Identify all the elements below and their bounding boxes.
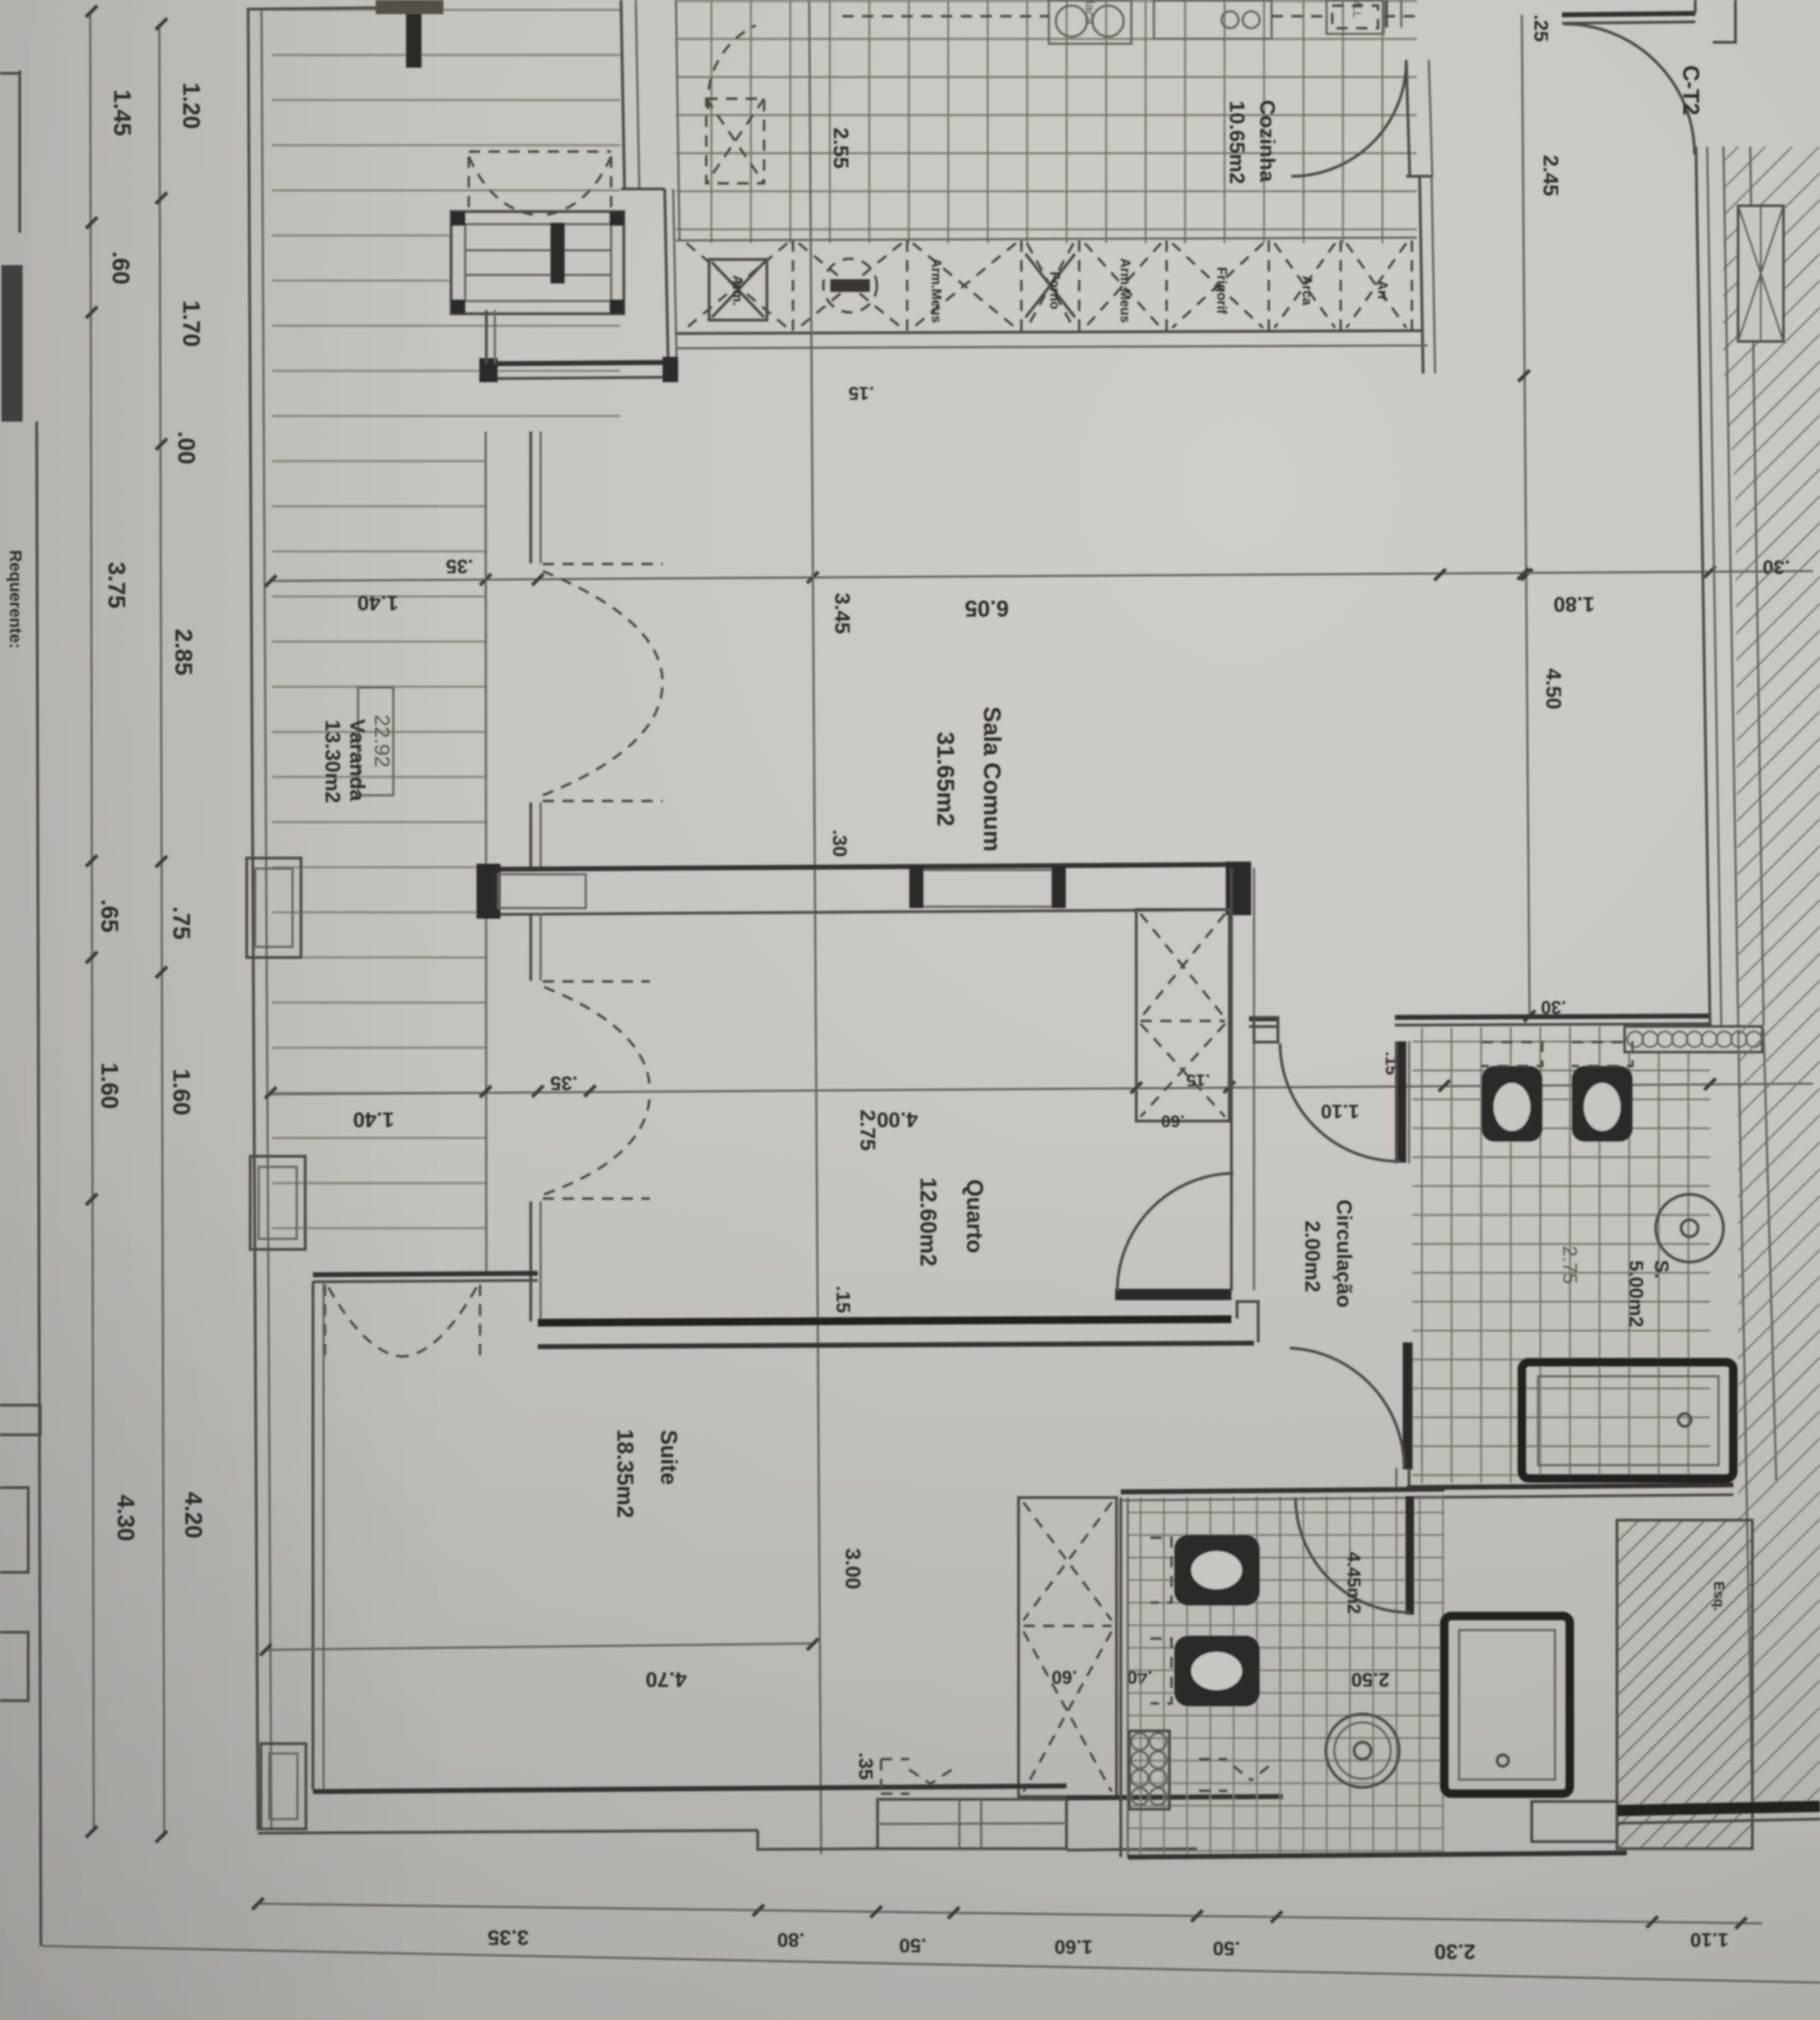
svg-text:Arm.Meus: Arm.Meus	[1117, 258, 1132, 323]
svg-text:Quarto: Quarto	[962, 1180, 988, 1254]
svg-text:.75: .75	[168, 906, 195, 939]
svg-text:1.40: 1.40	[353, 1108, 394, 1131]
svg-text:3.45: 3.45	[830, 593, 854, 634]
svg-text:3.75: 3.75	[103, 562, 130, 608]
svg-text:.15: .15	[832, 1286, 854, 1314]
svg-text:1.20: 1.20	[178, 82, 204, 129]
svg-text:5.00m2: 5.00m2	[1625, 1261, 1647, 1328]
svg-text:1.60: 1.60	[96, 1063, 123, 1109]
svg-text:Forno: Forno	[1047, 271, 1062, 310]
svg-text:.50: .50	[899, 1935, 927, 1957]
svg-text:Arm.Meus: Arm.Meus	[928, 258, 943, 323]
svg-text:C-T2: C-T2	[1678, 65, 1704, 115]
svg-text:1.10: 1.10	[1321, 1101, 1360, 1122]
svg-text:4.00: 4.00	[877, 1108, 918, 1131]
svg-text:4.50: 4.50	[1542, 668, 1565, 709]
svg-text:4.45m2: 4.45m2	[1344, 1552, 1365, 1614]
svg-text:Frigorif: Frigorif	[1214, 267, 1229, 314]
svg-text:Esq.: Esq.	[1711, 1581, 1726, 1611]
svg-text:1.60: 1.60	[1055, 1936, 1093, 1958]
svg-text:.60: .60	[107, 251, 134, 284]
svg-text:3.00: 3.00	[841, 1548, 864, 1589]
svg-text:.35: .35	[446, 556, 474, 577]
svg-text:4.30: 4.30	[112, 1495, 139, 1541]
svg-text:3.35: 3.35	[488, 1926, 529, 1949]
svg-text:2.75: 2.75	[1559, 1246, 1581, 1285]
svg-text:.35: .35	[855, 1753, 877, 1780]
svg-text:Arm.: Arm.	[730, 275, 744, 305]
svg-text:2.00m2: 2.00m2	[1301, 1220, 1324, 1292]
svg-text:.35: .35	[551, 1072, 578, 1094]
svg-text:13.30m2: 13.30m2	[321, 720, 344, 803]
svg-text:10.65m2: 10.65m2	[1225, 101, 1248, 184]
svg-text:1.80: 1.80	[1554, 592, 1594, 616]
svg-text:22.92: 22.92	[370, 714, 393, 767]
svg-text:6.05: 6.05	[965, 596, 1009, 621]
svg-text:31.65m2: 31.65m2	[932, 732, 959, 826]
svg-text:Suite: Suite	[656, 1430, 682, 1485]
svg-text:18.35m2: 18.35m2	[613, 1429, 638, 1518]
svg-text:4.20: 4.20	[180, 1492, 207, 1538]
svg-text:.30: .30	[829, 830, 851, 857]
svg-text:1.70: 1.70	[178, 300, 204, 347]
svg-text:.60: .60	[1052, 1667, 1077, 1688]
svg-text:Cozinha: Cozinha	[1255, 100, 1279, 183]
svg-text:S.: S.	[1651, 1260, 1673, 1278]
svg-text:Arca: Arca	[1299, 276, 1314, 306]
svg-text:.80: .80	[777, 1929, 805, 1951]
svg-text:Arr: Arr	[1375, 281, 1389, 301]
svg-text:Varanda: Varanda	[345, 719, 369, 802]
svg-text:Requerente:: Requerente:	[6, 550, 25, 649]
svg-text:2.50: 2.50	[1351, 1669, 1390, 1691]
svg-text:Sala Comum: Sala Comum	[978, 706, 1005, 852]
svg-text:MLL: MLL	[1351, 0, 1363, 18]
svg-text:1.60: 1.60	[168, 1069, 195, 1115]
svg-text:4.70: 4.70	[646, 1667, 687, 1691]
svg-text:2.45: 2.45	[1539, 155, 1562, 196]
svg-text:1.45: 1.45	[109, 90, 135, 136]
svg-text:2.85: 2.85	[170, 629, 197, 675]
svg-text:2.30: 2.30	[1434, 1940, 1475, 1963]
svg-text:.65: .65	[96, 899, 123, 932]
svg-text:12.60m2: 12.60m2	[916, 1177, 941, 1266]
svg-text:1.40: 1.40	[357, 591, 398, 614]
svg-text:.60: .60	[1161, 1111, 1184, 1130]
svg-text:.15: .15	[1186, 1070, 1210, 1089]
svg-text:Placa: Placa	[1083, 0, 1097, 25]
svg-text:2.75: 2.75	[856, 1110, 879, 1151]
svg-text:Circulação: Circulação	[1332, 1199, 1355, 1307]
svg-text:2.55: 2.55	[829, 128, 852, 169]
svg-text:1.10: 1.10	[1690, 1929, 1729, 1951]
svg-text:.50: .50	[1213, 1938, 1241, 1959]
svg-text:.15: .15	[849, 383, 874, 404]
svg-text:.25: .25	[1530, 15, 1552, 42]
svg-text:.00: .00	[173, 431, 199, 464]
